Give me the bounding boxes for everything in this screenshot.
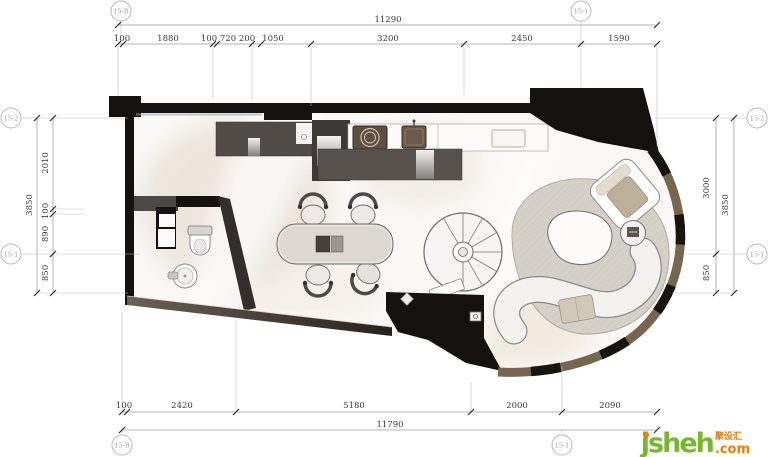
- dim-top-seg: 2450: [511, 34, 533, 44]
- toilet-icon: [188, 226, 212, 255]
- dim-bottom-seg: 5180: [343, 401, 365, 411]
- floor-plan-drawing: 11290 100 1880 100 720 200 1050 3200 245…: [0, 0, 770, 457]
- axis-marker-left-bottom: 15-1: [4, 251, 19, 259]
- axis-marker-left-top: 15-2: [4, 115, 19, 123]
- kitchen-island: [318, 149, 462, 180]
- dim-top-seg: 720: [220, 34, 236, 44]
- dim-bottom-seg: 100: [116, 401, 132, 411]
- dim-right-seg: 850: [702, 265, 712, 281]
- watermark-tld: .com: [715, 443, 750, 456]
- counter-gap: [296, 123, 312, 144]
- axis-marker-right-top: 15-2: [750, 115, 765, 123]
- wall-niche: [159, 214, 175, 227]
- dim-left-seg: 850: [41, 265, 51, 281]
- watermark-brand-wrap: jsheh: [641, 433, 713, 456]
- dim-right-total: 3850: [721, 194, 731, 216]
- dim-bottom-seg: 2000: [506, 401, 528, 411]
- dim-top-seg: 1050: [262, 34, 284, 44]
- wall-fixture: [470, 312, 481, 321]
- wardrobe-handle-icon: [248, 138, 260, 156]
- dim-left-seg: 2010: [41, 152, 51, 174]
- dim-left-total: 3850: [25, 194, 35, 216]
- watermark-chinese: 聚设汇: [715, 433, 742, 442]
- axis-marker-bottom-left: 15-B: [114, 442, 129, 450]
- dim-bottom-seg: 2420: [171, 401, 193, 411]
- cooktop-icon: [353, 126, 387, 149]
- counter-appliance: [492, 130, 525, 147]
- floor-plan-sheet: 11290 100 1880 100 720 200 1050 3200 245…: [0, 0, 770, 457]
- axis-marker-top-left: 15-B: [113, 8, 128, 16]
- watermark-right: 聚设汇 .com: [715, 433, 750, 456]
- dim-bottom-seg: 2090: [599, 401, 621, 411]
- axis-marker-top-right: 15-1: [574, 8, 589, 16]
- dim-bottom-total: 11790: [376, 420, 403, 430]
- dim-top-seg: 100: [201, 34, 217, 44]
- dim-left-seg: 100: [41, 203, 51, 219]
- side-table: [621, 221, 646, 246]
- watermark-brand: jsheh: [641, 428, 713, 457]
- dim-top-total: 11290: [374, 15, 401, 25]
- dim-top-seg: 100: [114, 34, 130, 44]
- dim-right-seg: 3000: [702, 177, 712, 199]
- dim-left-seg: 890: [41, 226, 51, 242]
- island-handle-icon: [416, 150, 434, 179]
- dim-top-seg: 1880: [157, 34, 179, 44]
- dim-top-seg: 200: [239, 34, 255, 44]
- table-books: [316, 236, 343, 252]
- axis-marker-right-bottom: 15-1: [750, 251, 765, 259]
- watermark-j-dot-icon: [643, 432, 649, 438]
- axis-marker-bottom-right: 15-1: [555, 442, 570, 450]
- dim-top-seg: 1590: [608, 34, 630, 44]
- watermark-logo: jsheh 聚设汇 .com: [641, 433, 750, 456]
- dim-top-seg: 3200: [377, 34, 399, 44]
- wall-niche: [158, 229, 175, 247]
